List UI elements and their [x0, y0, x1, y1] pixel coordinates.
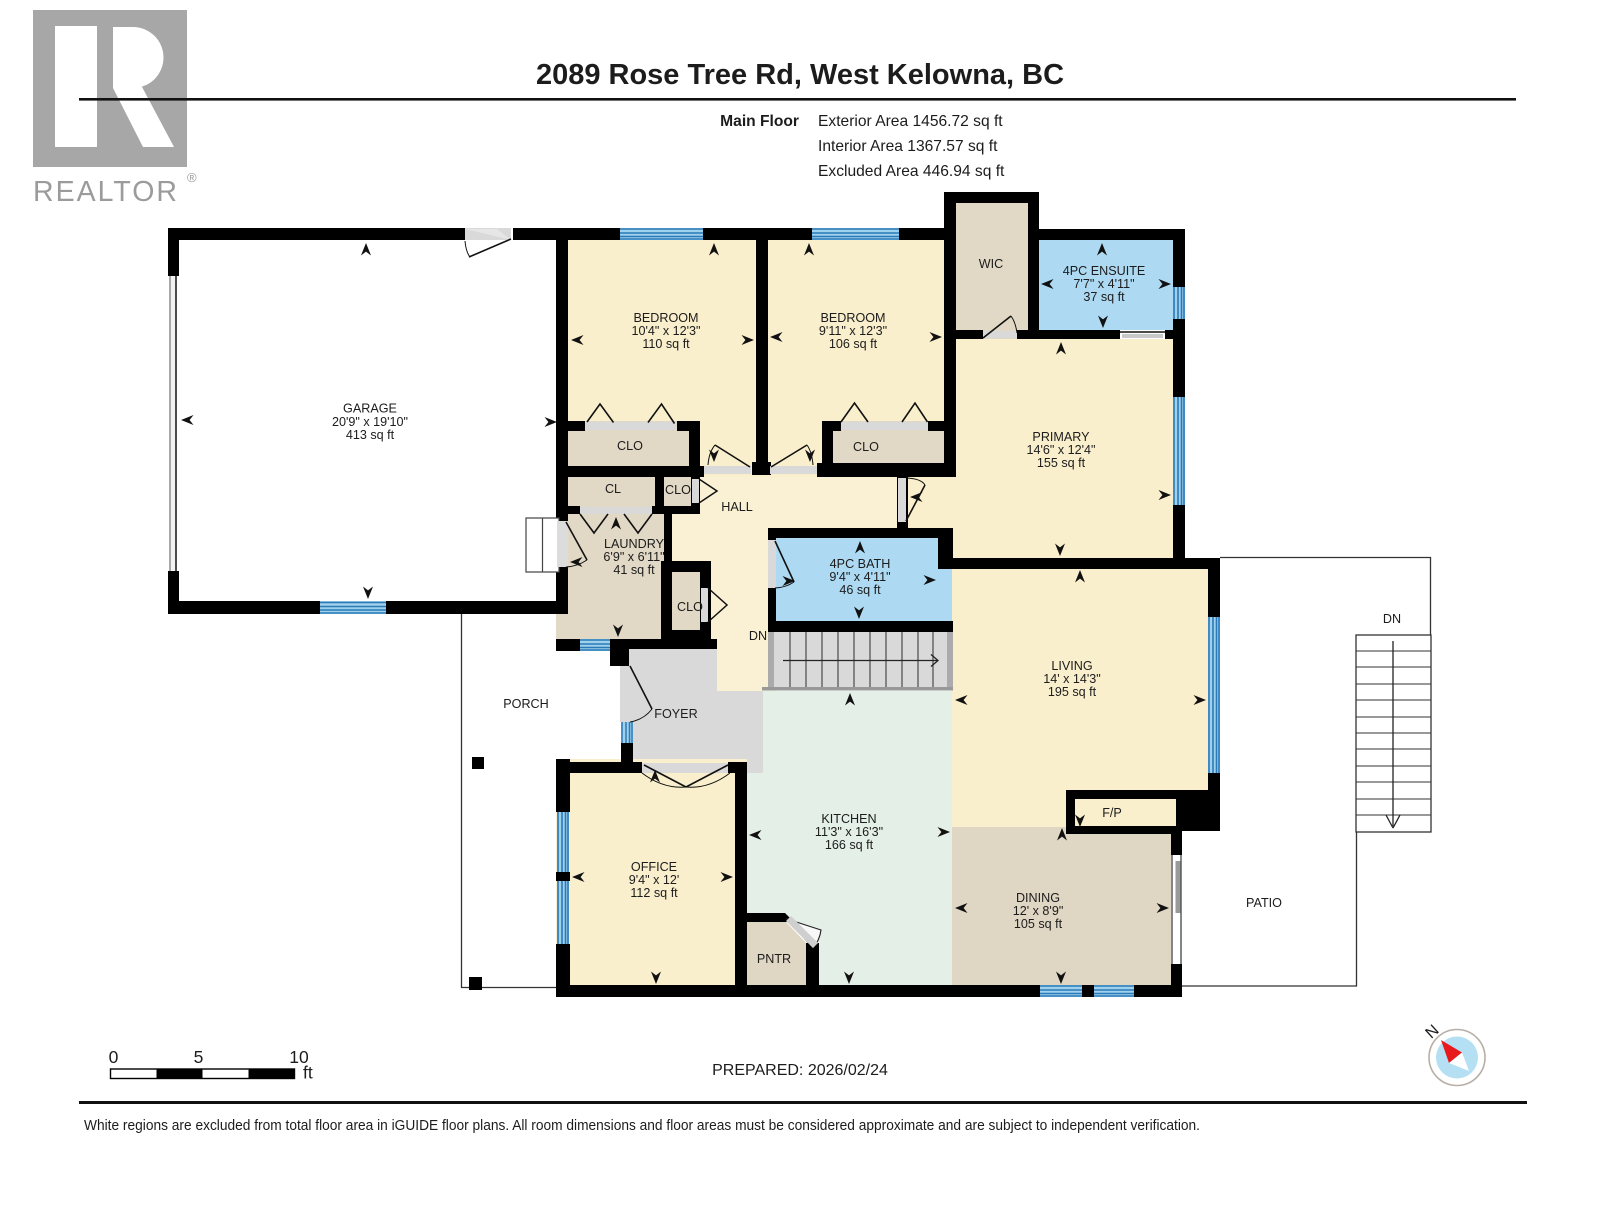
svg-text:413 sq ft: 413 sq ft — [346, 428, 395, 442]
svg-text:BEDROOM: BEDROOM — [633, 311, 698, 325]
svg-text:6'9" x 6'11": 6'9" x 6'11" — [603, 550, 664, 564]
svg-text:Interior Area 1367.57 sq ft: Interior Area 1367.57 sq ft — [818, 138, 998, 155]
svg-text:LAUNDRY: LAUNDRY — [604, 537, 665, 551]
svg-text:112 sq ft: 112 sq ft — [630, 886, 678, 900]
svg-text:110 sq ft: 110 sq ft — [642, 337, 690, 351]
svg-text:CLO: CLO — [665, 483, 691, 497]
svg-text:166 sq ft: 166 sq ft — [825, 838, 874, 852]
svg-text:5: 5 — [194, 1047, 204, 1067]
svg-text:155 sq ft: 155 sq ft — [1037, 456, 1086, 470]
svg-text:PRIMARY: PRIMARY — [1032, 430, 1090, 444]
svg-text:OFFICE: OFFICE — [631, 860, 677, 874]
svg-text:Excluded Area 446.94 sq ft: Excluded Area 446.94 sq ft — [818, 163, 1005, 180]
svg-text:DN: DN — [749, 629, 767, 643]
svg-text:CLO: CLO — [617, 439, 643, 453]
svg-text:PREPARED: 2026/02/24: PREPARED: 2026/02/24 — [712, 1062, 888, 1079]
svg-text:CLO: CLO — [677, 600, 703, 614]
svg-text:PATIO: PATIO — [1246, 896, 1282, 910]
svg-text:Exterior Area 1456.72 sq ft: Exterior Area 1456.72 sq ft — [818, 113, 1003, 130]
svg-text:4PC ENSUITE: 4PC ENSUITE — [1063, 264, 1146, 278]
svg-text:105 sq ft: 105 sq ft — [1014, 917, 1063, 931]
svg-text:DINING: DINING — [1016, 891, 1060, 905]
svg-text:106 sq ft: 106 sq ft — [829, 337, 878, 351]
svg-text:GARAGE: GARAGE — [343, 402, 397, 416]
svg-text:9'11" x 12'3": 9'11" x 12'3" — [819, 324, 887, 338]
svg-text:20'9" x 19'10": 20'9" x 19'10" — [332, 415, 408, 429]
svg-text:10'4" x 12'3": 10'4" x 12'3" — [631, 324, 700, 338]
svg-text:4PC BATH: 4PC BATH — [830, 557, 891, 571]
svg-text:ft: ft — [303, 1063, 313, 1083]
svg-text:WIC: WIC — [979, 257, 1003, 271]
svg-text:14'6" x 12'4": 14'6" x 12'4" — [1026, 443, 1095, 457]
svg-text:Main Floor: Main Floor — [720, 113, 799, 130]
svg-text:®: ® — [187, 170, 197, 185]
svg-text:FOYER: FOYER — [654, 707, 697, 721]
svg-text:HALL: HALL — [721, 500, 753, 514]
svg-text:White regions are excluded fro: White regions are excluded from total fl… — [84, 1117, 1200, 1134]
svg-text:46 sq ft: 46 sq ft — [839, 583, 881, 597]
svg-text:DN: DN — [1383, 612, 1401, 626]
svg-text:37 sq ft: 37 sq ft — [1083, 290, 1125, 304]
svg-text:9'4" x 12': 9'4" x 12' — [629, 873, 680, 887]
svg-text:CL: CL — [605, 482, 621, 496]
svg-text:KITCHEN: KITCHEN — [821, 812, 876, 826]
svg-text:11'3" x 16'3": 11'3" x 16'3" — [815, 825, 883, 839]
svg-text:41 sq ft: 41 sq ft — [613, 563, 655, 577]
svg-text:7'7" x 4'11": 7'7" x 4'11" — [1073, 277, 1134, 291]
svg-text:REALTOR: REALTOR — [33, 176, 179, 208]
svg-text:195 sq ft: 195 sq ft — [1048, 685, 1097, 699]
svg-text:LIVING: LIVING — [1051, 659, 1092, 673]
svg-text:F/P: F/P — [1102, 806, 1122, 820]
svg-text:2089 Rose Tree Rd, West Kelown: 2089 Rose Tree Rd, West Kelowna, BC — [536, 59, 1064, 91]
svg-text:BEDROOM: BEDROOM — [820, 311, 885, 325]
svg-text:PNTR: PNTR — [757, 952, 791, 966]
svg-text:0: 0 — [109, 1047, 119, 1067]
svg-text:12' x 8'9": 12' x 8'9" — [1013, 904, 1064, 918]
svg-text:9'4" x 4'11": 9'4" x 4'11" — [829, 570, 890, 584]
svg-text:PORCH: PORCH — [503, 697, 548, 711]
svg-text:CLO: CLO — [853, 440, 879, 454]
svg-text:14' x 14'3": 14' x 14'3" — [1043, 672, 1101, 686]
